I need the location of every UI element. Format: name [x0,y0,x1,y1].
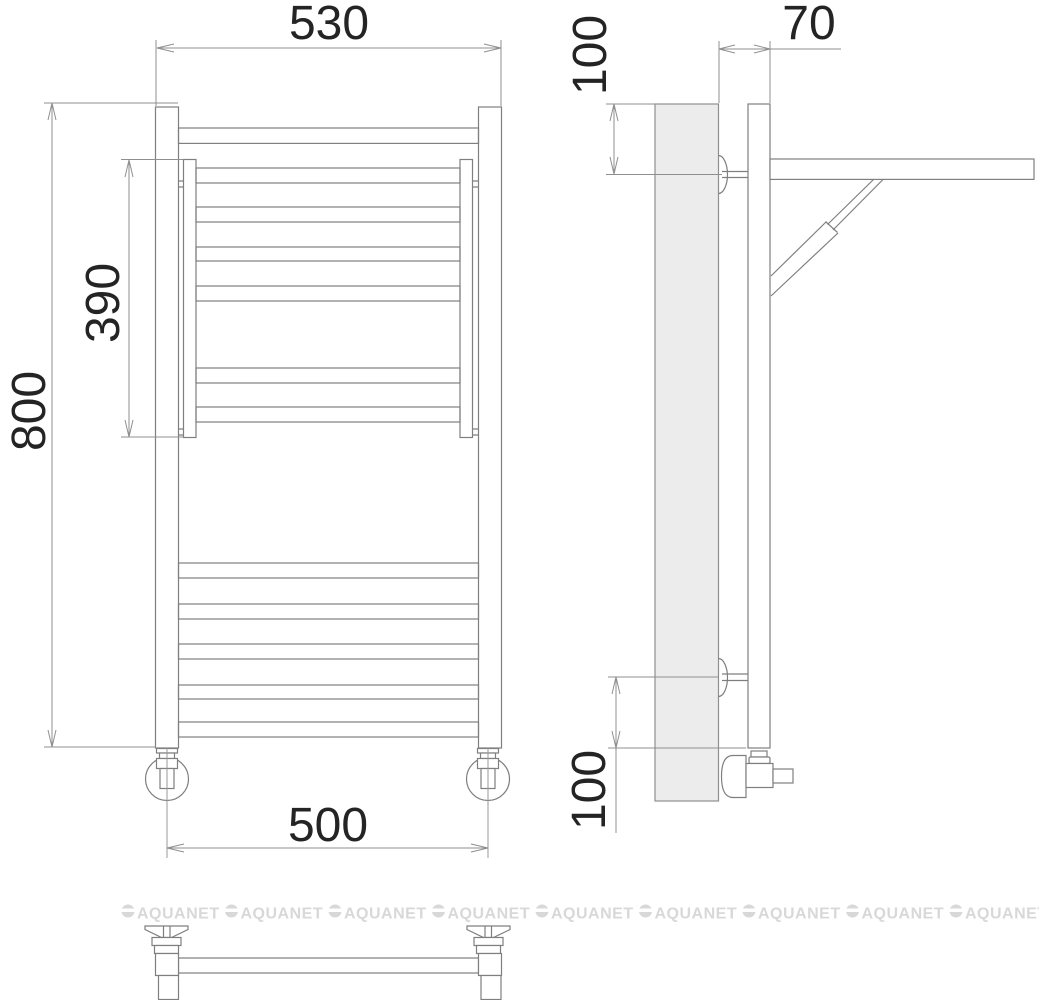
diagonal-strut [771,180,883,297]
watermark-text: AQUANET [758,906,841,923]
valve-assembly [722,751,794,798]
side-post [748,104,770,748]
right-post [479,107,502,748]
connecting-tube [179,958,479,973]
watermark-text: AQUANET [862,906,945,923]
foot-cap [145,926,188,938]
watermark-row: AQUANET AQUANET AQUANET AQUANET AQUANET … [120,905,1039,923]
watermark: AQUANET [948,905,1039,923]
watermark-text: AQUANET [965,906,1039,923]
rung [179,604,479,619]
lower-rungs [179,563,479,737]
shelf-bracket [770,159,1034,179]
watermark-text: AQUANET [241,906,324,923]
dimension-overall-height: 800 [3,103,178,747]
foot-cap [467,926,510,938]
bottom-mounting-bolt [719,659,749,697]
dim-label-heated-section: 390 [77,263,130,343]
rung [196,407,460,422]
watermark: AQUANET [431,905,531,923]
rung [196,368,460,383]
left-post [156,107,179,748]
rung [179,722,479,737]
technical-drawing-page: 530 800 390 500 [0,0,1039,1000]
dim-label-overall-height: 800 [3,371,56,451]
watermark: AQUANET [534,905,634,923]
dim-label-feet-spacing: 500 [288,799,368,852]
watermark-text: AQUANET [448,906,531,923]
watermark: AQUANET [741,905,841,923]
wall-panel [655,104,719,801]
left-collector [184,160,197,438]
dimension-feet-spacing: 500 [167,748,488,858]
right-collector [460,160,473,438]
dimension-wall-clearance: 70 [719,0,841,103]
rung [196,207,460,222]
side-view [655,104,1034,801]
front-view [146,107,510,801]
dimension-front-width: 530 [156,0,501,106]
rung [179,685,479,699]
rung [196,286,460,301]
dim-label-top-bracket-offset: 100 [564,15,617,95]
dim-label-wall-clearance: 70 [782,0,835,50]
watermark: AQUANET [845,905,945,923]
rung [179,644,479,659]
towel-rail-drawing: 530 800 390 500 [0,0,1039,1000]
rung [196,168,460,183]
watermark-text: AQUANET [137,906,220,923]
upper-rungs [196,168,460,422]
collector-stubs [179,181,479,435]
valve-outlet [773,769,793,783]
bottom-detail-view [145,926,510,1000]
top-mounting-bolt [719,156,749,194]
watermark: AQUANET [638,905,738,923]
valve-body [746,764,773,788]
dim-label-bottom-bracket-offset: 100 [563,750,616,830]
valve-nut [751,751,767,757]
dim-label-front-width: 530 [289,0,369,50]
watermark: AQUANET [120,905,220,923]
watermark: AQUANET [327,905,427,923]
watermark-text: AQUANET [551,906,634,923]
watermark-text: AQUANET [655,906,738,923]
valve-collar [749,757,770,764]
rung [196,247,460,261]
watermark: AQUANET [224,905,324,923]
watermark-text: AQUANET [344,906,427,923]
top-rail-tube [179,128,479,143]
valve-bonnet [722,756,747,798]
rung [179,563,479,578]
